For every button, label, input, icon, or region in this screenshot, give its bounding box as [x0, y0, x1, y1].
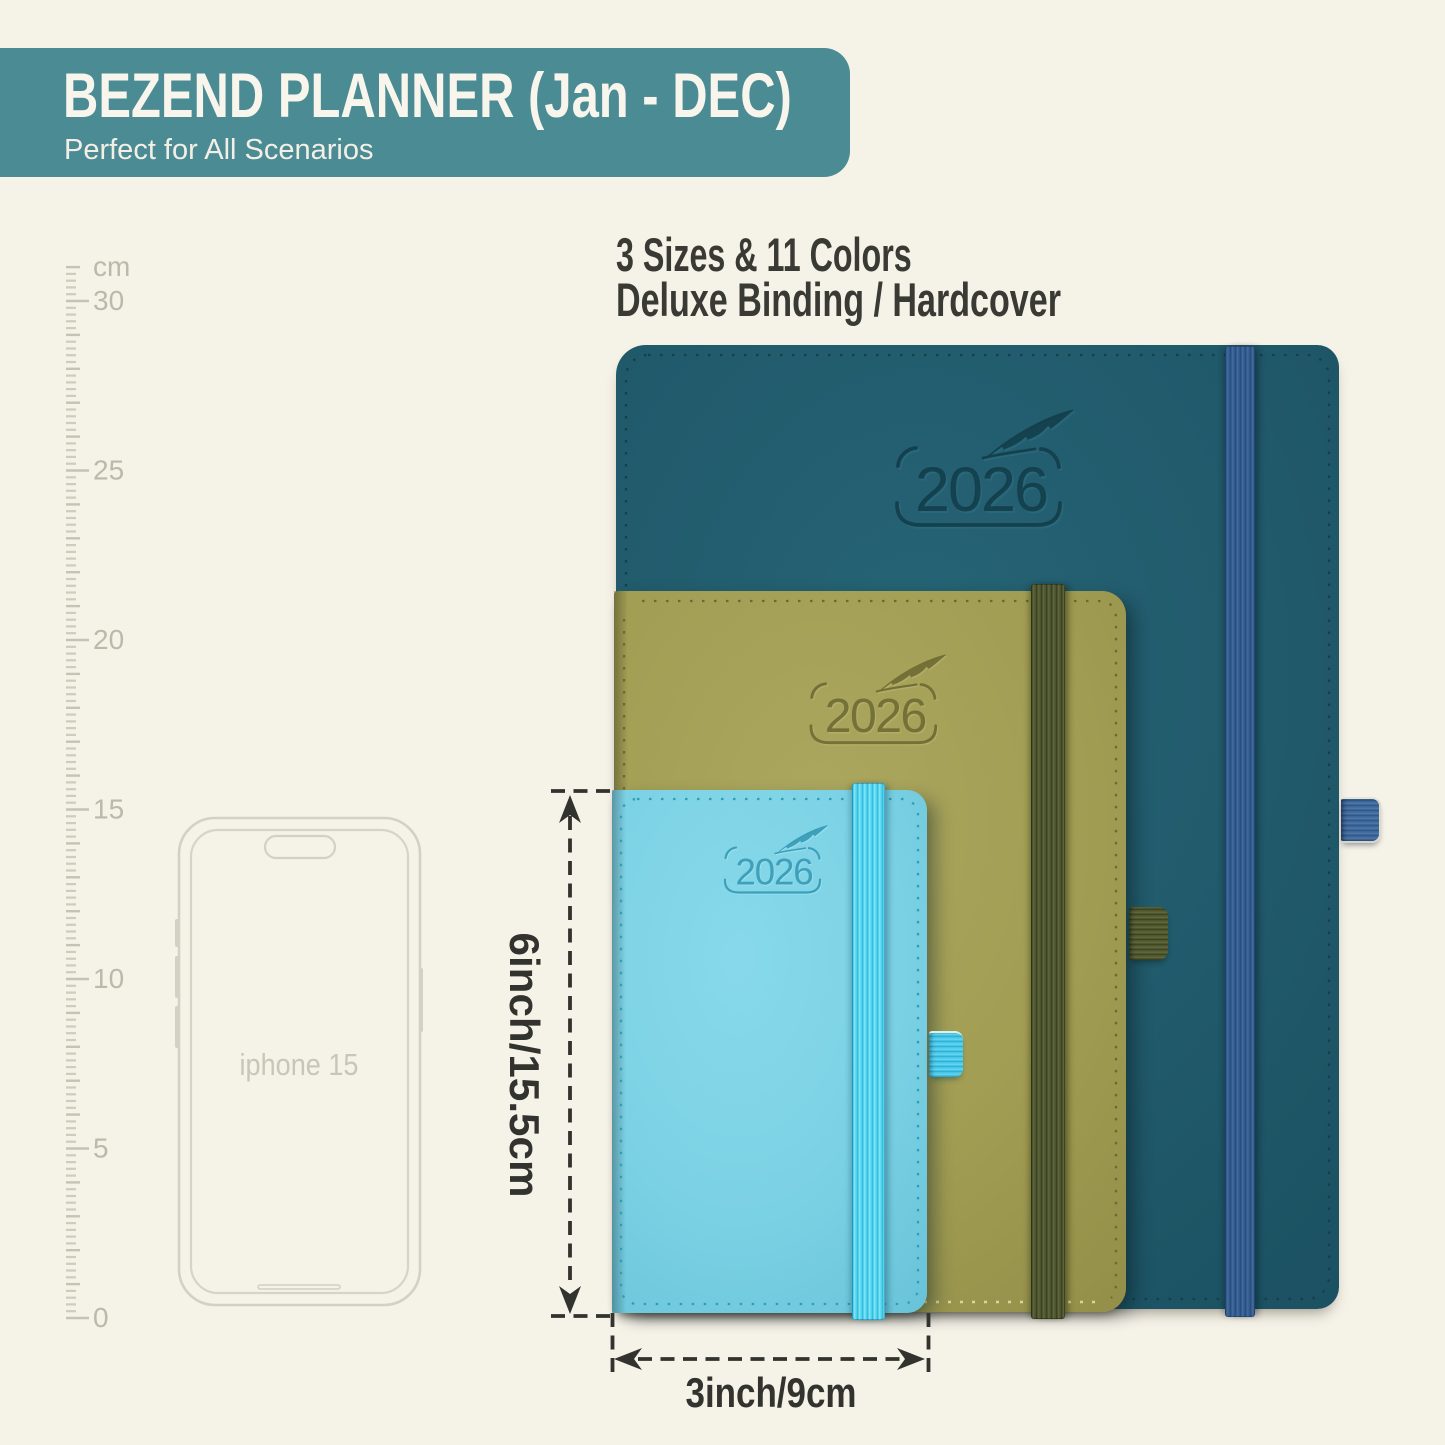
svg-text:6inch/15.5cm: 6inch/15.5cm — [501, 933, 548, 1198]
svg-text:3inch/9cm: 3inch/9cm — [686, 1369, 857, 1416]
